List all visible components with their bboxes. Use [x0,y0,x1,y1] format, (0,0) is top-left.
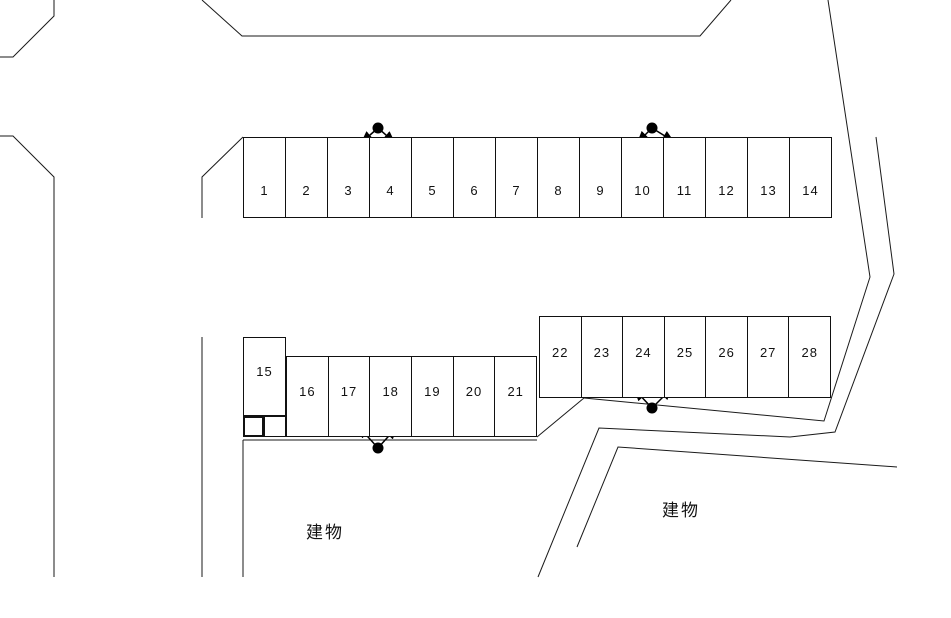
parking-space: 3 [328,138,370,217]
parking-space-number: 25 [677,345,693,360]
road-edge-south [577,447,897,547]
parking-space: 22 [540,317,582,397]
parking-space: 8 [538,138,580,217]
road-edge-northwest-lower [0,136,54,577]
parking-space: 12 [706,138,748,217]
parking-space-number: 19 [424,384,440,399]
parking-space: 27 [748,317,790,397]
parking-space: 4 [370,138,412,217]
parking-space-number: 11 [677,183,693,198]
small-structure-box-thick [243,416,264,437]
parking-space-number: 17 [341,384,357,399]
parking-space: 18 [370,357,412,436]
parking-space: 19 [412,357,454,436]
parking-space-number: 21 [507,384,523,399]
road-edge-northwest-upper [0,0,54,57]
parking-space: 21 [495,357,536,436]
parking-space: 20 [454,357,496,436]
parking-space-number: 3 [344,183,352,198]
parking-lot-map: 1234567891011121314151617181920212223242… [0,0,951,618]
parking-space-number: 27 [760,345,776,360]
parking-space: 14 [790,138,831,217]
parking-space-number: 18 [382,384,398,399]
parking-space-number: 13 [760,183,776,198]
parking-space: 13 [748,138,790,217]
small-structure-box-thin [264,416,286,437]
parking-space-number: 20 [466,384,482,399]
parking-space: 16 [287,357,329,436]
parking-space-number: 22 [552,345,568,360]
parking-row-1-14: 1234567891011121314 [243,137,832,218]
property-edge-west-upper [202,137,243,218]
parking-space-number: 12 [718,183,734,198]
parking-space: 17 [329,357,371,436]
parking-space: 10 [622,138,664,217]
parking-space: 28 [789,317,830,397]
parking-space-number: 15 [256,364,272,379]
ground-edge-diagonal [537,398,584,437]
parking-space: 26 [706,317,748,397]
parking-space-number: 28 [802,345,818,360]
parking-space: 5 [412,138,454,217]
site-plan-lines [0,0,951,618]
marker-dot-icon [647,403,658,414]
parking-space-number: 2 [302,183,310,198]
parking-space: 7 [496,138,538,217]
parking-space-number: 8 [554,183,562,198]
parking-space-number: 23 [594,345,610,360]
parking-space: 1 [244,138,286,217]
parking-space: 25 [665,317,707,397]
parking-space: 9 [580,138,622,217]
parking-space-number: 1 [260,183,268,198]
parking-space: 2 [286,138,328,217]
parking-space-number: 10 [634,183,650,198]
parking-space: 23 [582,317,624,397]
parking-space: 11 [664,138,706,217]
marker-dot-icon [373,123,384,134]
parking-space-number: 26 [718,345,734,360]
parking-space-15: 15 [243,337,286,416]
parking-space: 15 [244,338,285,415]
marker-dot-icon [373,443,384,454]
building-label-right: 建物 [651,496,711,521]
parking-space-number: 4 [386,183,394,198]
parking-space-number: 9 [596,183,604,198]
building-label-left: 建物 [295,518,355,543]
boundary-north [202,0,731,36]
parking-space-number: 5 [428,183,436,198]
parking-space: 6 [454,138,496,217]
marker-dot-icon [647,123,658,134]
parking-row-16-21: 161718192021 [286,356,537,437]
parking-space: 24 [623,317,665,397]
parking-space-number: 6 [470,183,478,198]
parking-space-number: 24 [635,345,651,360]
parking-space-number: 7 [512,183,520,198]
parking-row-22-28: 22232425262728 [539,316,831,398]
parking-space-number: 14 [802,183,818,198]
parking-space-number: 16 [299,384,315,399]
